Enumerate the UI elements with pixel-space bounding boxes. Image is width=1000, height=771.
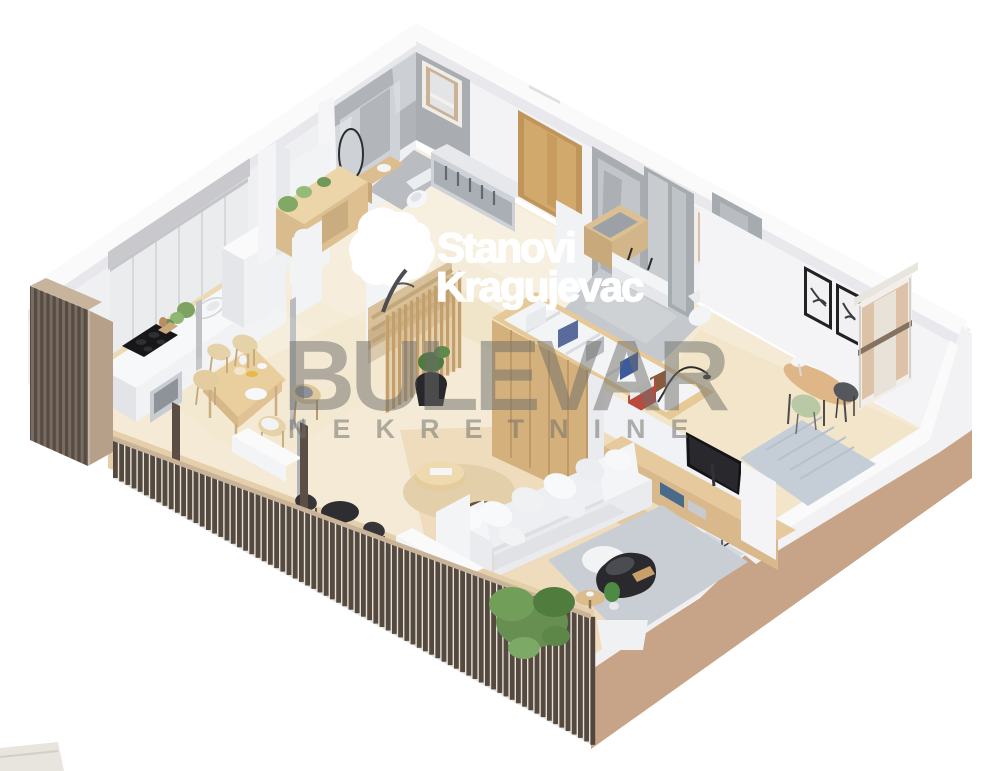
svg-text:Kragujevac: Kragujevac <box>436 263 644 310</box>
svg-text:NEKRETNINE: NEKRETNINE <box>288 414 714 444</box>
